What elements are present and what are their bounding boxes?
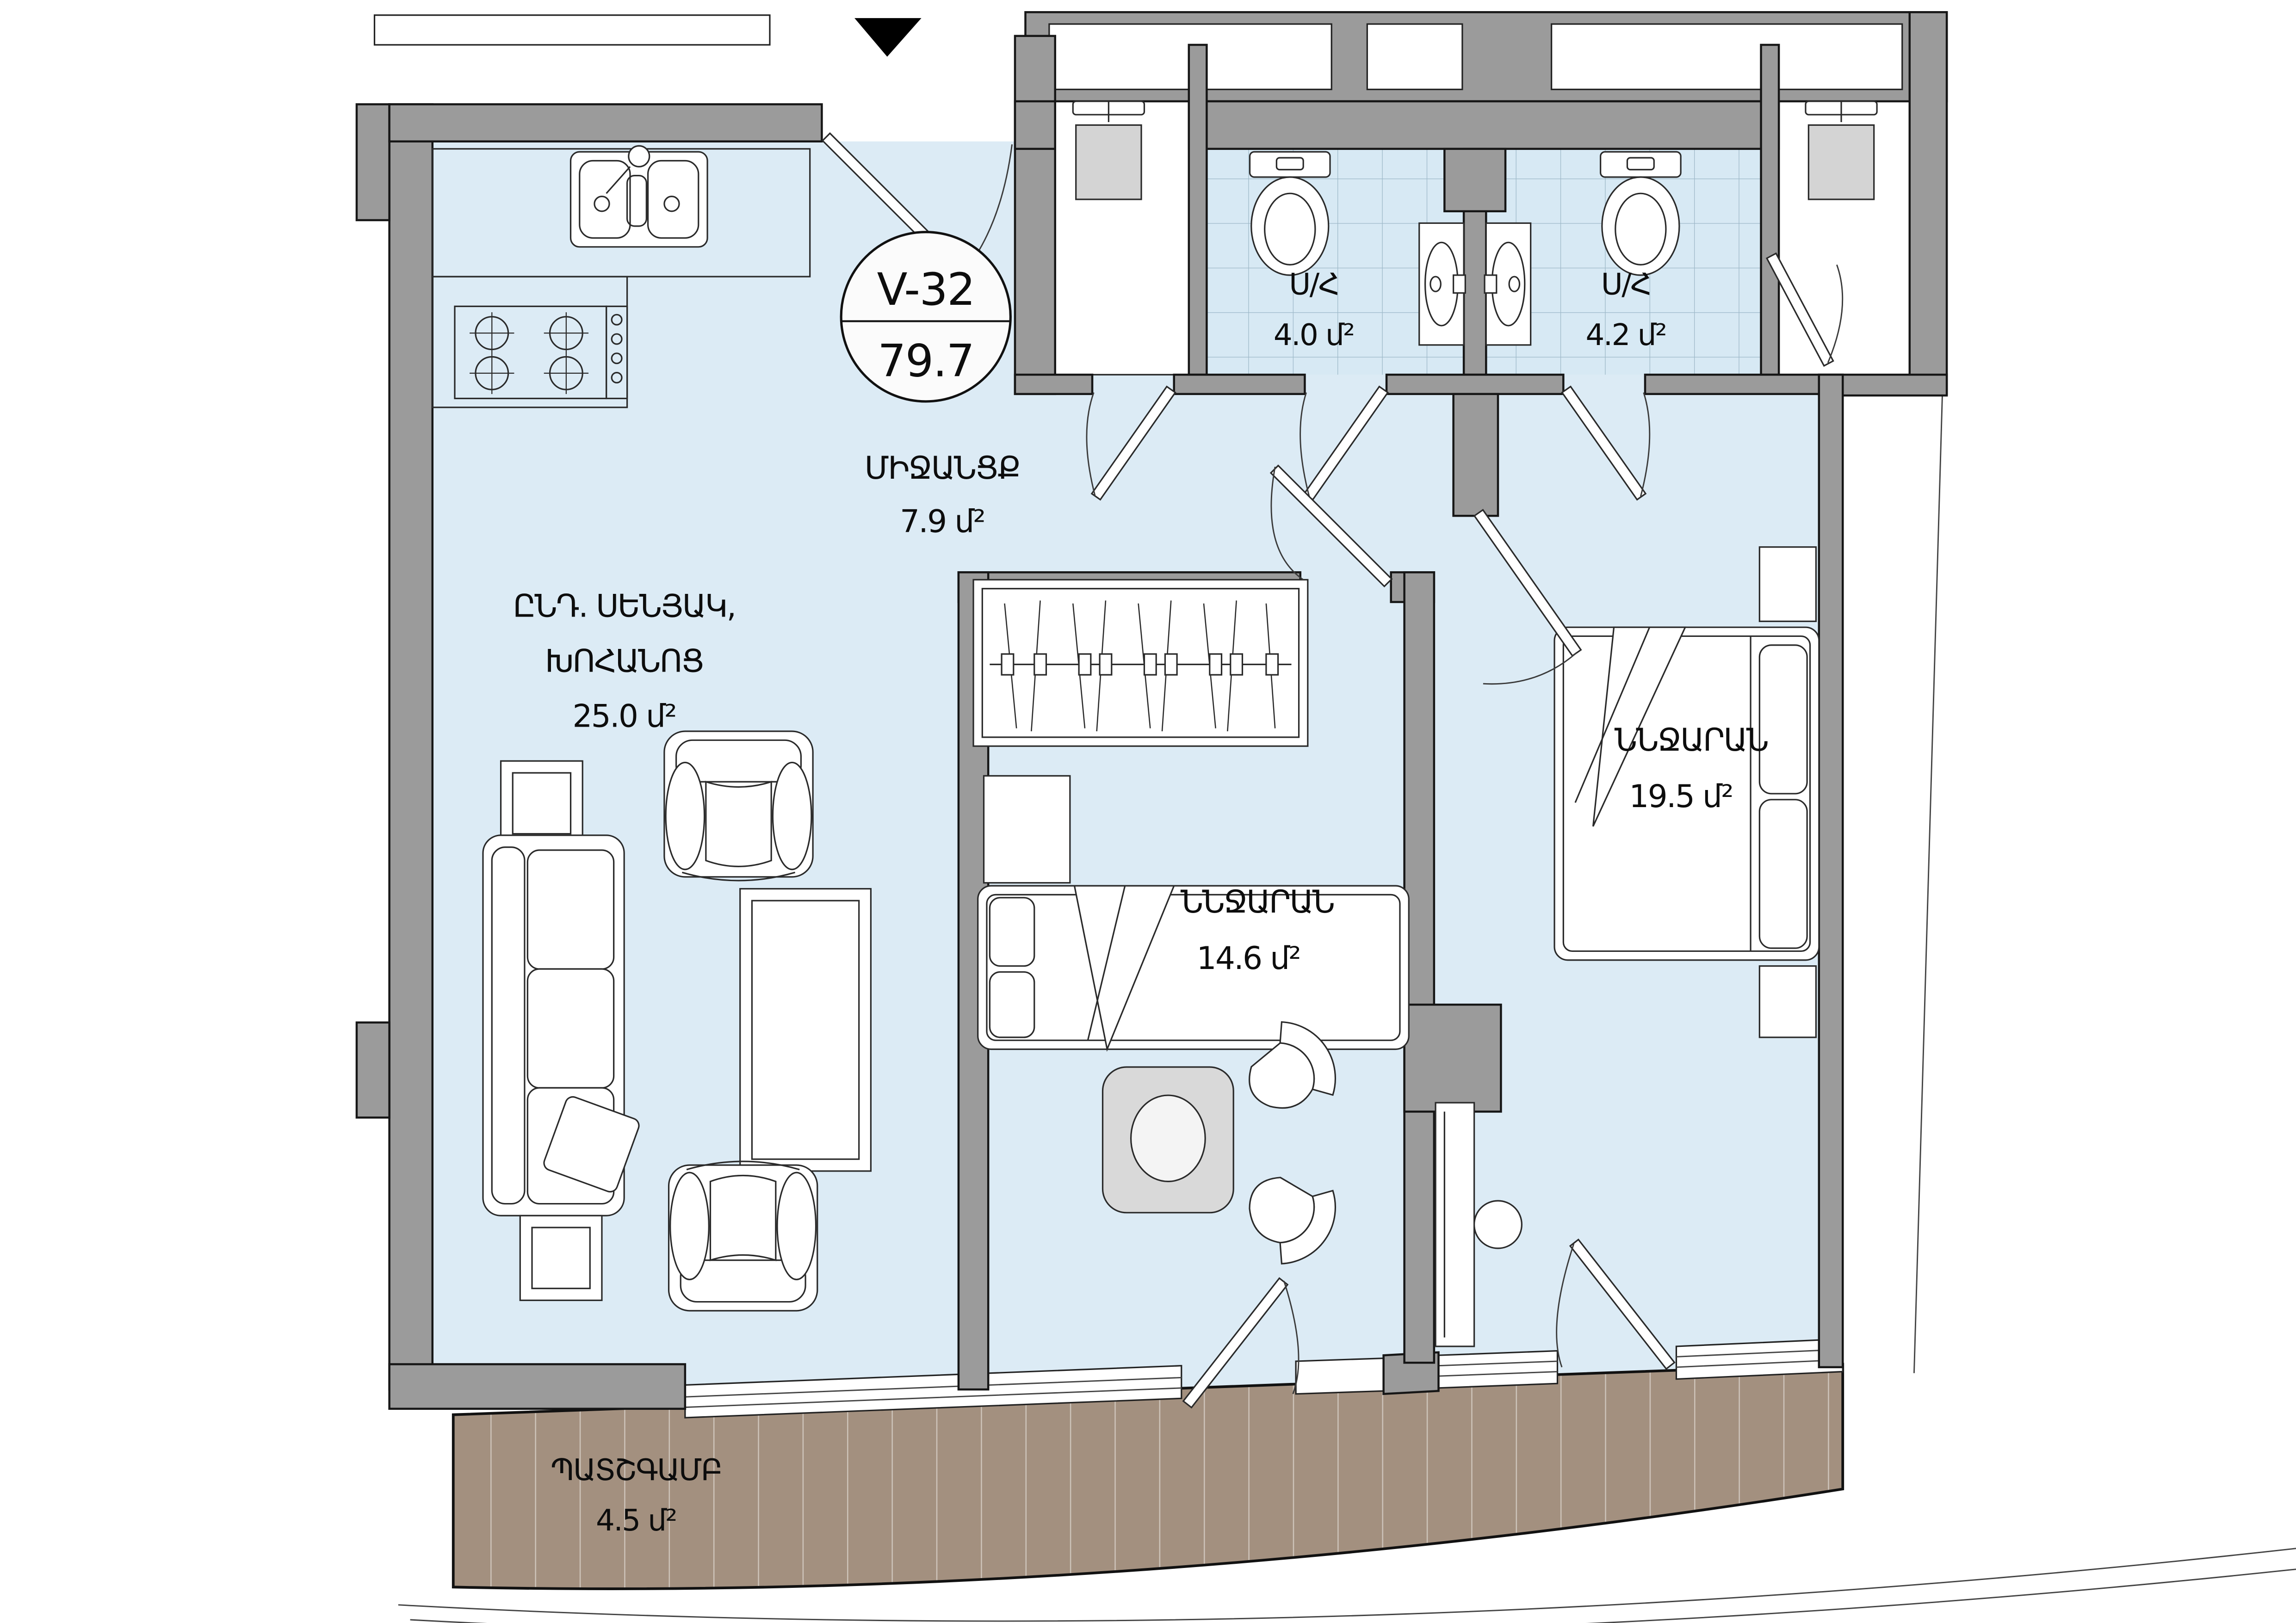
label-bath2-name: Ս/Հ xyxy=(1601,267,1651,302)
sofa xyxy=(483,835,641,1216)
bath-block-left-wall xyxy=(1015,36,1055,394)
window-mid-right xyxy=(1439,1351,1558,1388)
sink-2 xyxy=(1485,223,1531,345)
unit-badge: V-32 79.7 xyxy=(841,232,1010,401)
label-bedroom1-name: ՆՆՋԱՐԱՆ xyxy=(1181,883,1334,920)
toilet-2 xyxy=(1601,152,1681,275)
sink-1 xyxy=(1419,223,1466,345)
wardrobe xyxy=(973,580,1308,746)
label-balcony-name: ՊԱՏՇԳԱՄԲ xyxy=(551,1453,721,1487)
unit-area: 79.7 xyxy=(878,335,974,387)
right-wall xyxy=(1819,375,1843,1367)
label-hallway-area: 7.9 մ² xyxy=(900,503,984,540)
stool xyxy=(1474,1201,1522,1248)
block-right-wall xyxy=(1910,12,1947,394)
window-mid-left xyxy=(1296,1358,1384,1394)
shaft-box-3 xyxy=(1552,24,1902,89)
top-wall-kitchen xyxy=(390,104,822,141)
label-bath1-name: Ս/Հ xyxy=(1289,267,1338,302)
left-column-top xyxy=(357,104,390,220)
band-b4 xyxy=(1645,375,1843,394)
label-living-area: 25.0 մ² xyxy=(572,697,675,734)
left-wall xyxy=(390,104,433,1389)
toilet-1 xyxy=(1250,152,1330,275)
label-bath1-area: 4.0 մ² xyxy=(1274,318,1354,352)
dresser xyxy=(1436,1103,1474,1346)
label-bedroom2-name: ՆՆՋԱՐԱՆ xyxy=(1615,722,1768,758)
band-b2 xyxy=(1174,375,1305,394)
label-balcony-area: 4.5 մ² xyxy=(596,1503,676,1538)
window-bedroom-2 xyxy=(1676,1339,1843,1379)
armchair-1 xyxy=(664,731,813,881)
label-bedroom2-area: 19.5 մ² xyxy=(1629,778,1732,815)
band-seg-b xyxy=(1189,101,1779,149)
coffee-table xyxy=(740,889,871,1171)
unit-id: V-32 xyxy=(877,264,975,315)
label-bath2-area: 4.2 մ² xyxy=(1585,318,1666,352)
top-ledge xyxy=(374,15,769,45)
label-living-name-1: ԸՆԴ. ՍԵՆՅԱԿ, xyxy=(513,588,736,624)
floor-plan-svg: V-32 79.7 ՄԻՋԱՆՑՔ 7.9 մ² ԸՆԴ. ՍԵՆՅԱԿ, ԽՈ… xyxy=(0,0,2296,1623)
hall-stub-wall xyxy=(1454,394,1498,516)
label-bedroom1-area: 14.6 մ² xyxy=(1197,940,1300,976)
armchair-2 xyxy=(669,1161,817,1311)
nightstand-2a xyxy=(1759,547,1816,622)
kitchen-sink xyxy=(571,146,708,247)
label-hallway-name: ՄԻՋԱՆՑՔ xyxy=(865,450,1020,486)
floor-plan-canvas: V-32 79.7 ՄԻՋԱՆՑՔ 7.9 մ² ԸՆԴ. ՍԵՆՅԱԿ, ԽՈ… xyxy=(0,0,2296,1623)
niche1-bath1-wall xyxy=(1189,45,1207,375)
entry-arrow-icon xyxy=(854,18,922,57)
band-b3 xyxy=(1386,375,1563,394)
bath-center-pier xyxy=(1444,149,1505,211)
left-column-mid xyxy=(357,1023,390,1118)
bottom-left-wall xyxy=(390,1364,685,1408)
band-seg-a xyxy=(1015,101,1055,149)
nightstand-1 xyxy=(984,776,1070,882)
center-column xyxy=(1405,1005,1501,1111)
band-b1 xyxy=(1015,375,1092,394)
label-living-name-2: ԽՈՀԱՆՈՑ xyxy=(545,643,703,679)
shaft-box-2 xyxy=(1367,24,1462,89)
nightstand-2b xyxy=(1759,966,1816,1037)
bath2-niche2-wall xyxy=(1761,45,1779,375)
